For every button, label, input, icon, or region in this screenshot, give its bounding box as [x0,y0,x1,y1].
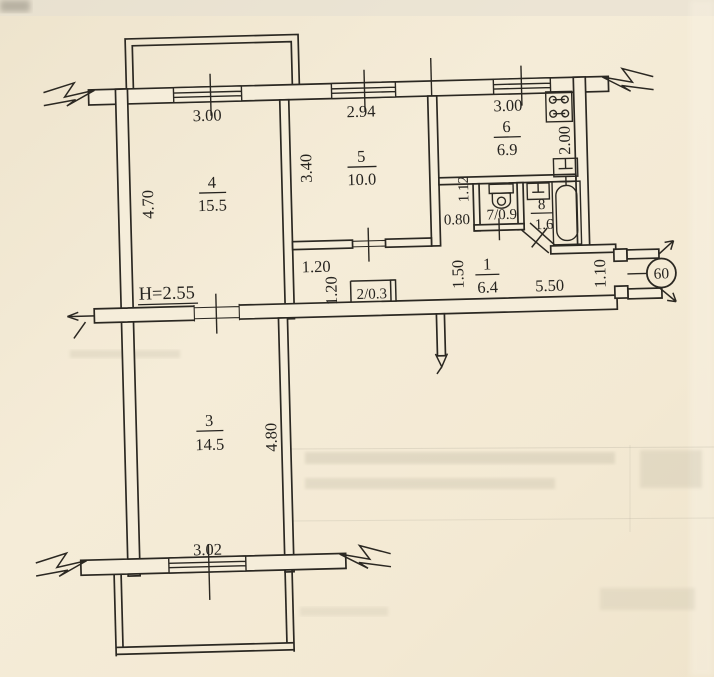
dim-niche-width: 0.80 [444,212,471,229]
dim-room3-depth: 4.80 [261,423,281,452]
room8-area: 1.6 [535,217,555,233]
room1-area: 6.4 [477,277,498,297]
dim-room3-width: 3.02 [193,540,222,560]
dim-hall-length: 5.50 [535,276,564,296]
room3-number: 3 [205,411,214,430]
dim-room4-depth: 4.70 [138,190,158,219]
room4-area: 15.5 [198,195,227,215]
room6-area: 6.9 [497,140,518,160]
room2-label: 2/0.3 [356,286,387,303]
room7-label: 7/0.9 [486,207,517,224]
dim-room6-width: 3.00 [493,96,522,116]
dim-room4-width: 3.00 [192,105,221,125]
scanned-floor-plan-page: 60 4 15.5 3.00 4.70 5 10.0 2.94 3.40 6 6… [0,0,714,677]
room5-area: 10.0 [347,169,376,189]
dim-entry-door: 1.10 [590,259,610,288]
window-room5 [331,82,395,99]
window-room4 [173,86,241,103]
ceiling-height: H=2.55 [138,283,195,304]
room1-number: 1 [483,254,492,273]
dim-room5-depth: 3.40 [296,154,316,183]
dim-hall-width: 1.50 [448,260,468,289]
room3-area: 14.5 [195,435,224,455]
dim-room6-depth: 2.00 [555,126,575,155]
floor-plan-drawing: 60 4 15.5 3.00 4.70 5 10.0 2.94 3.40 6 6… [0,0,714,677]
dim-closet-depth: 1.20 [321,276,341,305]
dim-closet-width: 1.20 [301,257,330,277]
room6-number: 6 [502,117,511,136]
dim-room5-width: 2.94 [346,101,375,121]
room5-number: 5 [357,147,366,166]
apartment-number: 60 [653,265,669,282]
room4-number: 4 [208,173,217,192]
room8-number: 8 [538,197,546,213]
dim-niche-depth: 1.12 [456,176,473,203]
